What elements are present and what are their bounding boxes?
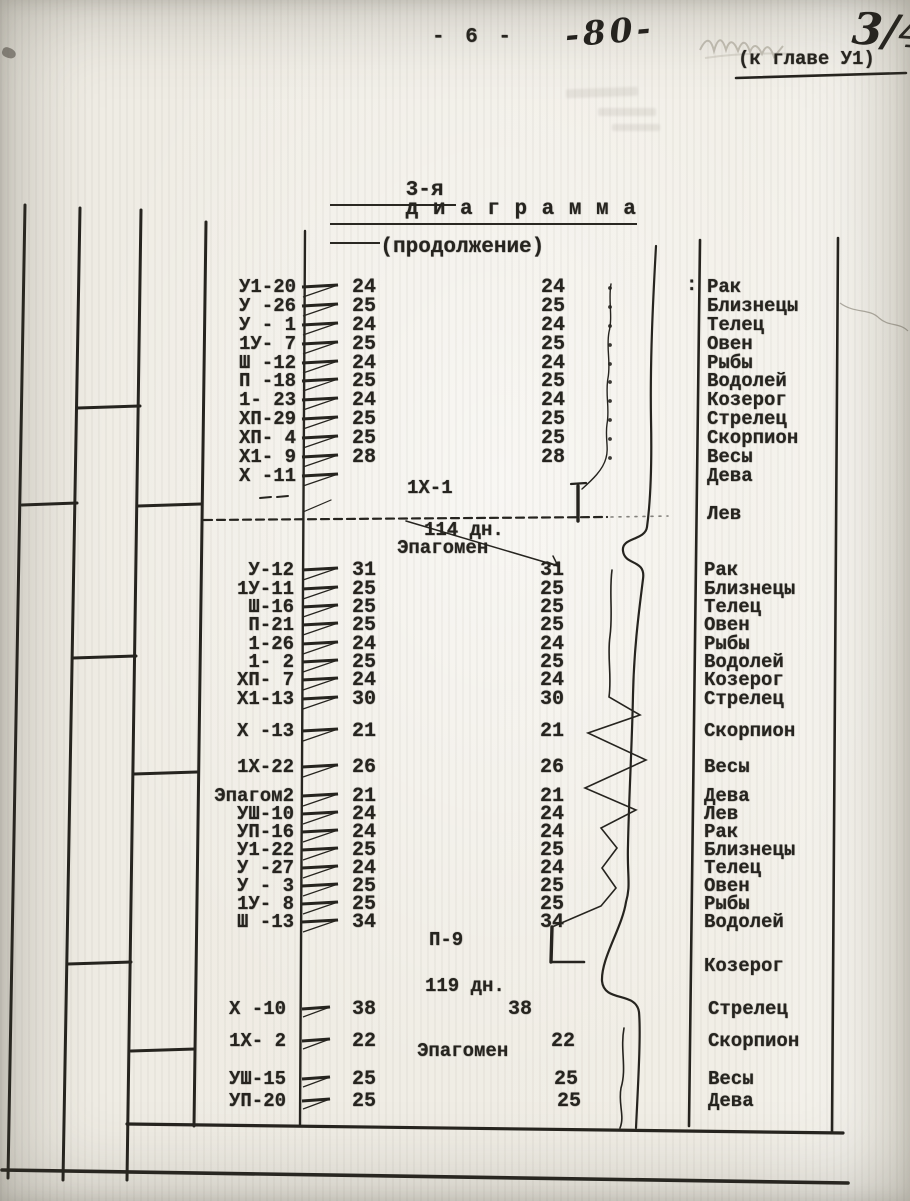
paper-crack [840,303,908,331]
separator2-days: 119 дн. [425,977,505,996]
ghost-mark [566,87,638,99]
typed-page-number: - 6 - [432,28,515,47]
count-cell-right: 22 [551,1032,575,1051]
count-cell: 28 [352,448,376,467]
zodiac-cell: Дева [708,1092,754,1111]
date-cell: Х1-13 [237,690,294,709]
count-cell: 34 [352,913,376,932]
count-cell-right: 26 [540,758,564,777]
count-cell: 26 [352,758,376,777]
ghost-mark [612,124,660,131]
zodiac-cell: Водолей [704,913,784,932]
chapter-reference: (к главе У1) [738,50,875,69]
ghost-mark [598,108,656,116]
page-title: 3-я д и а г р а м м а (продолжение) [330,143,637,276]
count-cell-right: 25 [557,1092,581,1111]
date-cell: Х -11 [239,467,296,486]
count-cell-right: 30 [540,690,564,709]
count-cell: 22 [352,1032,376,1051]
zodiac-cell: Скорпион [704,722,795,741]
count-cell: 38 [352,1000,376,1019]
ink-blotch [1,46,18,60]
title-suffix: (продолжение) [380,236,544,259]
zodiac-cell: Стрелец [708,1000,788,1019]
date-cell: УП-20 [229,1092,286,1111]
count-cell-right: 34 [540,913,564,932]
separator2-note: Эпагомен [417,1042,508,1061]
zodiac-cell: Весы [708,1070,754,1089]
zodiac-cell: Скорпион [708,1032,799,1051]
title-word: д и а г р а м м а [406,198,637,221]
date-cell: Х -13 [237,722,294,741]
zodiac-cell: Лев [707,505,741,524]
date-cell: Ш -13 [237,913,294,932]
count-cell: 30 [352,690,376,709]
count-cell-right: 38 [508,1000,532,1019]
zodiac-cell: Весы [704,758,750,777]
count-cell-right: 25 [554,1070,578,1089]
separator1-label: 1Х-1 [407,479,453,498]
zodiac-cell: Козерог [704,957,784,976]
date-cell: 1Х-22 [237,758,294,777]
separator2-label: П-9 [429,931,463,950]
count-cell: 25 [352,1092,376,1111]
count-cell: 25 [352,1070,376,1089]
count-cell-right: 28 [541,448,565,467]
separator1-note: Эпагомен [397,539,488,558]
date-cell: УШ-15 [229,1070,286,1089]
colon-mark: : [686,276,697,295]
date-cell: 1Х- 2 [229,1032,286,1051]
count-cell: 21 [352,722,376,741]
handwritten-page-number: -80- [563,8,655,55]
zodiac-cell: Дева [707,467,753,486]
scanned-document-page: - 6 - -80- 3/4 (к главе У1) 3-я д и а г … [0,0,910,1201]
date-cell: Х -10 [229,1000,286,1019]
zodiac-cell: Стрелец [704,690,784,709]
count-cell-right: 21 [540,722,564,741]
